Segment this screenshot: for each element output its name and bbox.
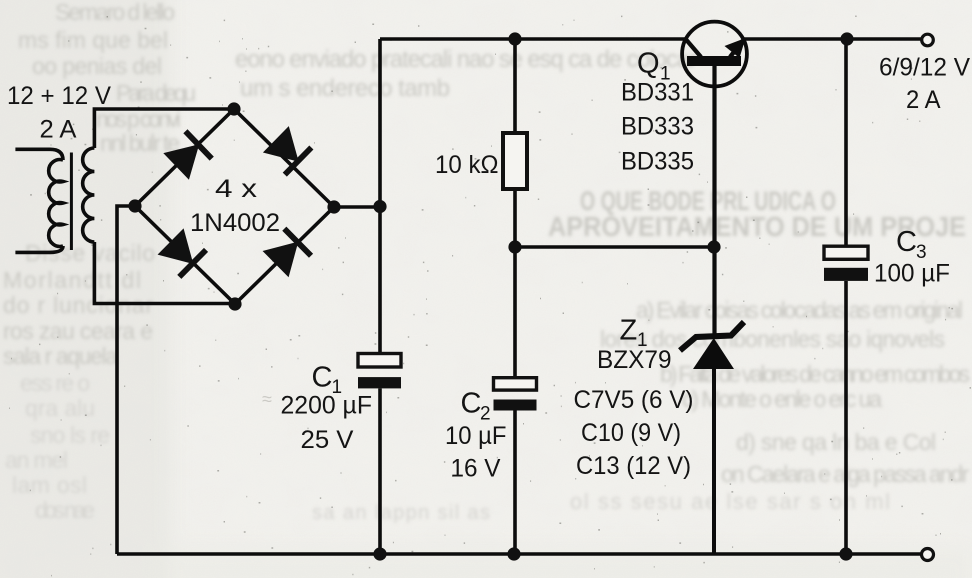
svg-text:C7V5 (6 V): C7V5 (6 V) [574, 386, 694, 414]
svg-text:BD335: BD335 [621, 148, 694, 176]
svg-text:BZX79: BZX79 [597, 346, 672, 374]
svg-text:2200 µF: 2200 µF [281, 392, 373, 420]
svg-text:Z: Z [620, 315, 638, 347]
svg-text:25 V: 25 V [301, 426, 354, 454]
svg-text:2 A: 2 A [40, 116, 77, 144]
svg-text:BD333: BD333 [621, 113, 694, 141]
svg-text:100 µF: 100 µF [874, 260, 950, 288]
svg-text:C10 (9 V): C10 (9 V) [581, 419, 681, 447]
svg-text:C: C [896, 226, 917, 258]
svg-text:Q: Q [637, 48, 660, 80]
svg-text:≈: ≈ [262, 389, 272, 409]
svg-text:C: C [461, 388, 482, 420]
svg-text:10 kΩ: 10 kΩ [435, 151, 499, 179]
svg-text:6/9/12 V: 6/9/12 V [879, 54, 970, 82]
svg-text:12 + 12 V: 12 + 12 V [7, 82, 111, 110]
svg-text:1N4002: 1N4002 [190, 209, 280, 237]
svg-text:16 V: 16 V [451, 455, 501, 483]
svg-text:BD331: BD331 [621, 79, 694, 107]
svg-text:2 A: 2 A [906, 86, 941, 114]
svg-text:C: C [312, 362, 333, 394]
svg-text:10 µF: 10 µF [445, 422, 507, 450]
svg-text:4 x: 4 x [215, 175, 258, 203]
svg-text:C13 (12 V): C13 (12 V) [576, 452, 691, 480]
